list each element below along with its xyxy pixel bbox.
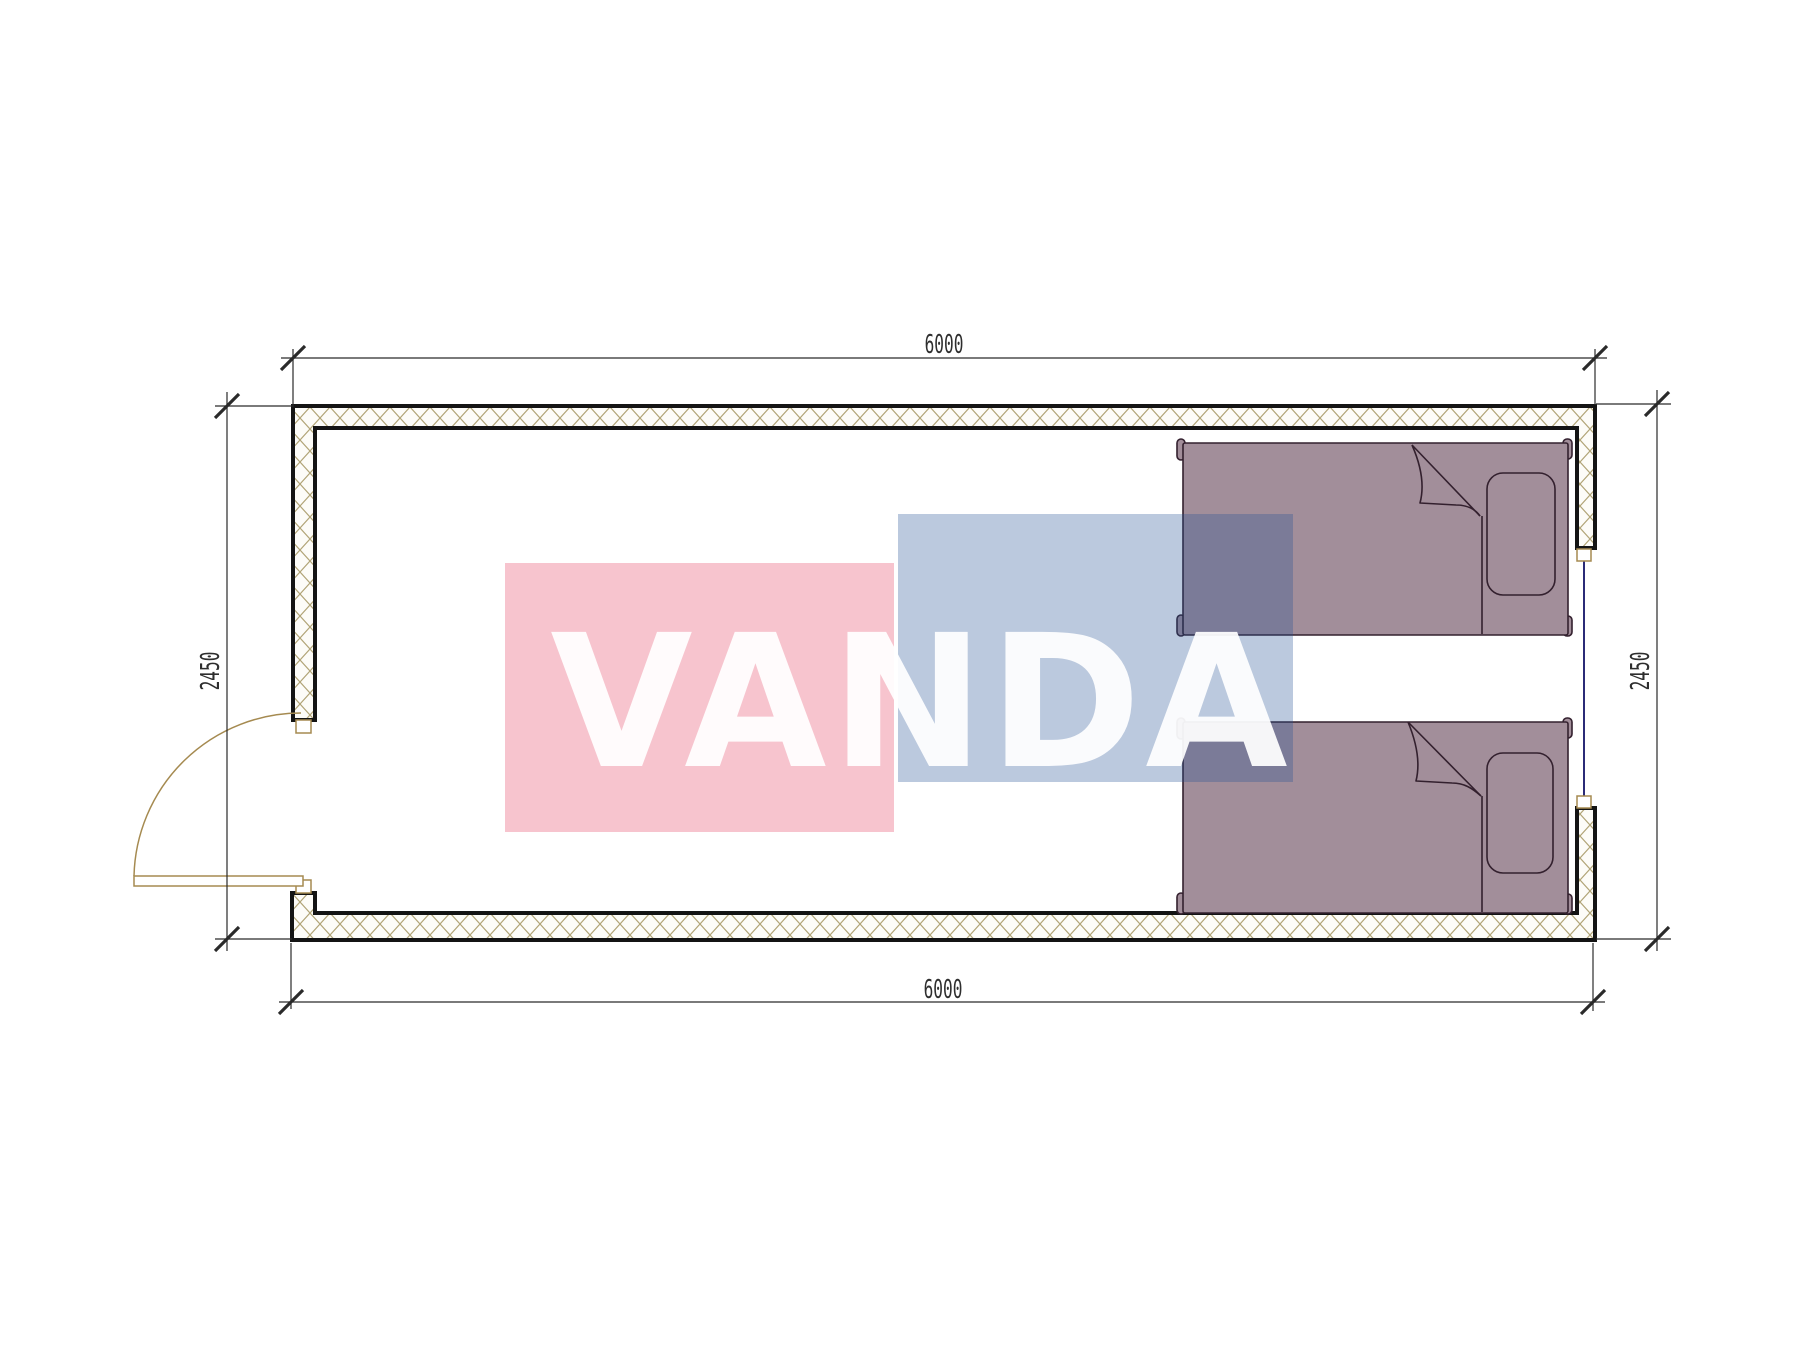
- door-swing-arc: [134, 713, 301, 876]
- door-leaf: [134, 876, 303, 886]
- entry-door: [134, 713, 311, 893]
- floor-plan-canvas: VANDA: [0, 0, 1800, 1350]
- dim-label-top: 6000: [925, 330, 964, 360]
- dim-label-bottom: 6000: [924, 975, 963, 1005]
- door-jamb-top: [296, 720, 311, 733]
- floor-plan-page: VANDA: [0, 0, 1800, 1350]
- dimension-left: [215, 392, 292, 951]
- bed-2-pillow: [1487, 753, 1553, 873]
- window-frame-bottom: [1577, 796, 1591, 808]
- watermark-text: VANDA: [550, 596, 1291, 810]
- window: [1577, 549, 1591, 808]
- dim-label-left: 2450: [196, 652, 226, 691]
- dim-label-right: 2450: [1626, 652, 1656, 691]
- watermark: VANDA: [505, 514, 1293, 832]
- window-frame-top: [1577, 549, 1591, 561]
- bed-1-pillow: [1487, 473, 1555, 595]
